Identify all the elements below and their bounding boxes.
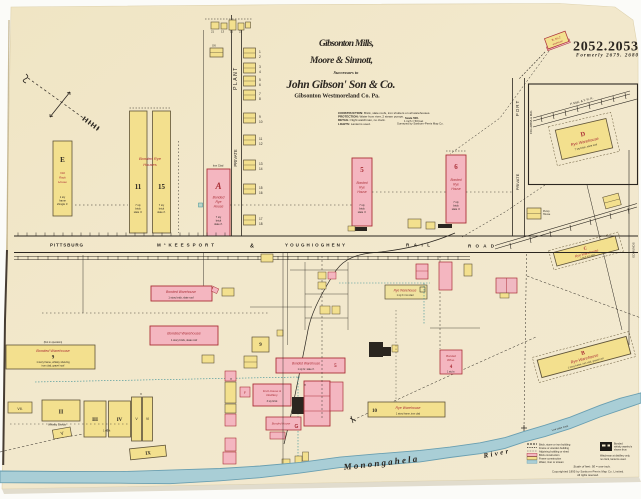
svg-text:7 sty: 7 sty [453, 200, 459, 204]
svg-text:15: 15 [259, 186, 263, 190]
svg-text:Rye: Rye [215, 200, 221, 204]
svg-text:PRIVATE: PRIVATE [515, 173, 520, 190]
svg-text:1 story brick, slate roof: 1 story brick, slate roof [168, 297, 193, 300]
svg-text:IX: IX [145, 451, 151, 457]
svg-text:Bonded: Bonded [451, 178, 462, 182]
svg-text:1 story brick, slate roof: 1 story brick, slate roof [171, 338, 197, 342]
svg-text:slate rf.: slate rf. [358, 210, 367, 214]
svg-text:1 sty fr.: 1 sty fr. [103, 430, 111, 433]
svg-text:11: 11 [259, 137, 263, 141]
svg-text:10: 10 [372, 409, 378, 414]
svg-text:6: 6 [454, 163, 458, 171]
svg-text:A: A [214, 181, 221, 191]
svg-text:X: X [140, 392, 142, 396]
svg-text:Old: Old [60, 171, 65, 175]
svg-text:LIGHTS: Lanterns used.: LIGHTS: Lanterns used. [338, 122, 371, 126]
svg-text:Houses: Houses [143, 162, 157, 167]
svg-text:1 story frame, iron clad: 1 story frame, iron clad [396, 413, 421, 416]
svg-text:COLUMBIA & McK.: COLUMBIA & McK. [529, 110, 533, 134]
svg-text:House: House [451, 187, 460, 191]
svg-text:Brick, stone or iron building: Brick, stone or iron building [539, 443, 571, 447]
svg-text:7 sty: 7 sty [359, 203, 365, 207]
svg-text:Rye: Rye [453, 183, 459, 187]
svg-text:Bonded Warehouse: Bonded Warehouse [36, 349, 70, 353]
svg-text:10: 10 [259, 120, 263, 124]
svg-text:no clock, lanterns used.: no clock, lanterns used. [600, 458, 627, 461]
svg-text:7 sty: 7 sty [216, 215, 222, 219]
svg-text:shown thus: shown thus [614, 449, 627, 452]
svg-text:14: 14 [259, 167, 263, 171]
svg-text:13: 13 [221, 30, 225, 34]
svg-text:John Gibson' Son & Co.: John Gibson' Son & Co. [286, 79, 396, 91]
svg-text:11: 11 [135, 183, 142, 191]
svg-text:Frame construction: Frame construction [539, 457, 562, 461]
svg-text:VI: VI [146, 417, 149, 421]
svg-text:Rye: Rye [359, 186, 365, 190]
svg-text:16: 16 [259, 191, 263, 195]
svg-text:Bonded House: Bonded House [272, 422, 291, 426]
svg-text:Formerly 2679. 2680: Formerly 2679. 2680 [576, 54, 639, 59]
svg-text:Surveyed by Sanborn-Perris Map: Surveyed by Sanborn-Perris Map Co. [397, 122, 444, 126]
svg-text:Gibsonton Westmoreland Co. Pa.: Gibsonton Westmoreland Co. Pa. [294, 94, 380, 100]
svg-text:8: 8 [259, 97, 261, 101]
svg-text:Adjoining building or shed: Adjoining building or shed [539, 450, 569, 454]
svg-text:9: 9 [259, 115, 261, 119]
svg-text:Whse.: Whse. [447, 358, 455, 362]
svg-text:7 sty: 7 sty [135, 203, 141, 207]
svg-text:Moore & Sinnott,: Moore & Sinnott, [309, 56, 373, 66]
svg-text:PORT: PORT [515, 100, 520, 116]
svg-text:F: F [244, 391, 246, 395]
svg-text:15: 15 [158, 183, 166, 191]
svg-text:Rack: Rack [59, 176, 66, 180]
svg-text:5: 5 [334, 363, 337, 369]
svg-text:Brick construction: Brick construction [539, 453, 560, 457]
svg-text:Distillery: Distillery [266, 393, 278, 397]
svg-text:Bonded Warehouse: Bonded Warehouse [166, 290, 196, 294]
svg-text:1 sty fr. iron clad: 1 sty fr. iron clad [397, 294, 414, 297]
svg-text:Iron Clad: Iron Clad [213, 164, 224, 168]
svg-text:brick: brick [159, 207, 165, 211]
svg-text:All rights reserved.: All rights reserved. [577, 473, 599, 477]
svg-text:Bonded Warehouse: Bonded Warehouse [167, 332, 201, 336]
svg-text:7 sty: 7 sty [159, 203, 165, 207]
svg-text:Water, river or stream: Water, river or stream [539, 460, 564, 464]
svg-text:21: 21 [211, 30, 215, 34]
svg-text:House: House [543, 213, 551, 216]
svg-text:PITTSBURG: PITTSBURG [50, 243, 83, 248]
svg-text:House: House [214, 205, 224, 209]
svg-text:Rye Warehouse: Rye Warehouse [394, 289, 417, 293]
svg-text:VII.: VII. [17, 407, 22, 411]
svg-text:6: 6 [259, 83, 261, 87]
svg-text:slate rf.: slate rf. [157, 210, 166, 214]
svg-text:II: II [59, 410, 64, 416]
svg-text:Bonded: Bonded [357, 181, 368, 185]
svg-text:iron clad, gravel roof: iron clad, gravel roof [42, 365, 65, 368]
svg-text:5: 5 [259, 78, 261, 82]
svg-text:Whisky Sheds: Whisky Sheds [48, 423, 66, 427]
svg-text:Successors to: Successors to [334, 70, 360, 75]
svg-text:1 sty br.: 1 sty br. [447, 371, 455, 374]
svg-text:&: & [250, 244, 254, 250]
svg-text:House: House [357, 190, 366, 194]
svg-text:5: 5 [360, 166, 364, 174]
svg-text:3: 3 [259, 65, 261, 69]
svg-text:2: 2 [259, 55, 261, 59]
svg-text:Rye Warehouse: Rye Warehouse [395, 406, 420, 410]
svg-text:PLANT: PLANT [233, 66, 239, 90]
svg-text:11: 11 [230, 30, 233, 34]
svg-text:7: 7 [259, 92, 261, 96]
svg-text:PRIVATE: PRIVATE [233, 149, 238, 167]
svg-text:4: 4 [259, 70, 261, 74]
svg-text:E: E [60, 156, 65, 164]
svg-text:Frame or wooden building: Frame or wooden building [539, 446, 570, 450]
svg-text:frame: frame [59, 199, 66, 203]
svg-text:Copyrighted 1895 by Sanborn-Pe: Copyrighted 1895 by Sanborn-Perris Map C… [552, 470, 624, 474]
svg-text:1: 1 [259, 50, 261, 54]
svg-text:IV: IV [117, 418, 123, 423]
svg-text:Off.: Off. [212, 44, 216, 48]
svg-text:23: 23 [239, 30, 243, 34]
svg-text:EDMUNDS: EDMUNDS [632, 242, 636, 257]
svg-text:1 sty: 1 sty [60, 195, 66, 199]
svg-text:(Not in operation): (Not in operation) [44, 341, 63, 344]
svg-text:brick: brick [359, 207, 365, 211]
svg-text:Bonded Rye: Bonded Rye [139, 156, 162, 161]
svg-text:brick: brick [216, 219, 222, 223]
svg-text:III: III [92, 418, 98, 423]
svg-text:12: 12 [259, 142, 263, 146]
svg-text:Gibsonton Mills,: Gibsonton Mills, [319, 39, 374, 49]
svg-text:1 sty br. slate rf.: 1 sty br. slate rf. [298, 368, 315, 371]
svg-text:18: 18 [259, 222, 263, 226]
svg-text:House: House [58, 180, 67, 184]
svg-text:Bonded Warehouse: Bonded Warehouse [292, 362, 320, 366]
svg-text:G: G [295, 424, 299, 430]
svg-text:slate rf.: slate rf. [214, 222, 223, 226]
svg-text:slate rf.: slate rf. [134, 210, 143, 214]
svg-text:Bonded: Bonded [213, 196, 225, 200]
svg-text:shingle rf.: shingle rf. [57, 202, 69, 206]
svg-text:slate rf.: slate rf. [452, 207, 461, 211]
svg-text:13: 13 [259, 162, 263, 166]
svg-text:3 sty brick: 3 sty brick [267, 400, 279, 403]
svg-text:17: 17 [259, 217, 263, 221]
svg-text:Scale of feet: 50 = one inch.: Scale of feet: 50 = one inch. [573, 465, 610, 469]
svg-text:brick: brick [135, 207, 141, 211]
svg-text:brick: brick [453, 204, 459, 208]
svg-text:2052.2053: 2052.2053 [573, 40, 638, 55]
